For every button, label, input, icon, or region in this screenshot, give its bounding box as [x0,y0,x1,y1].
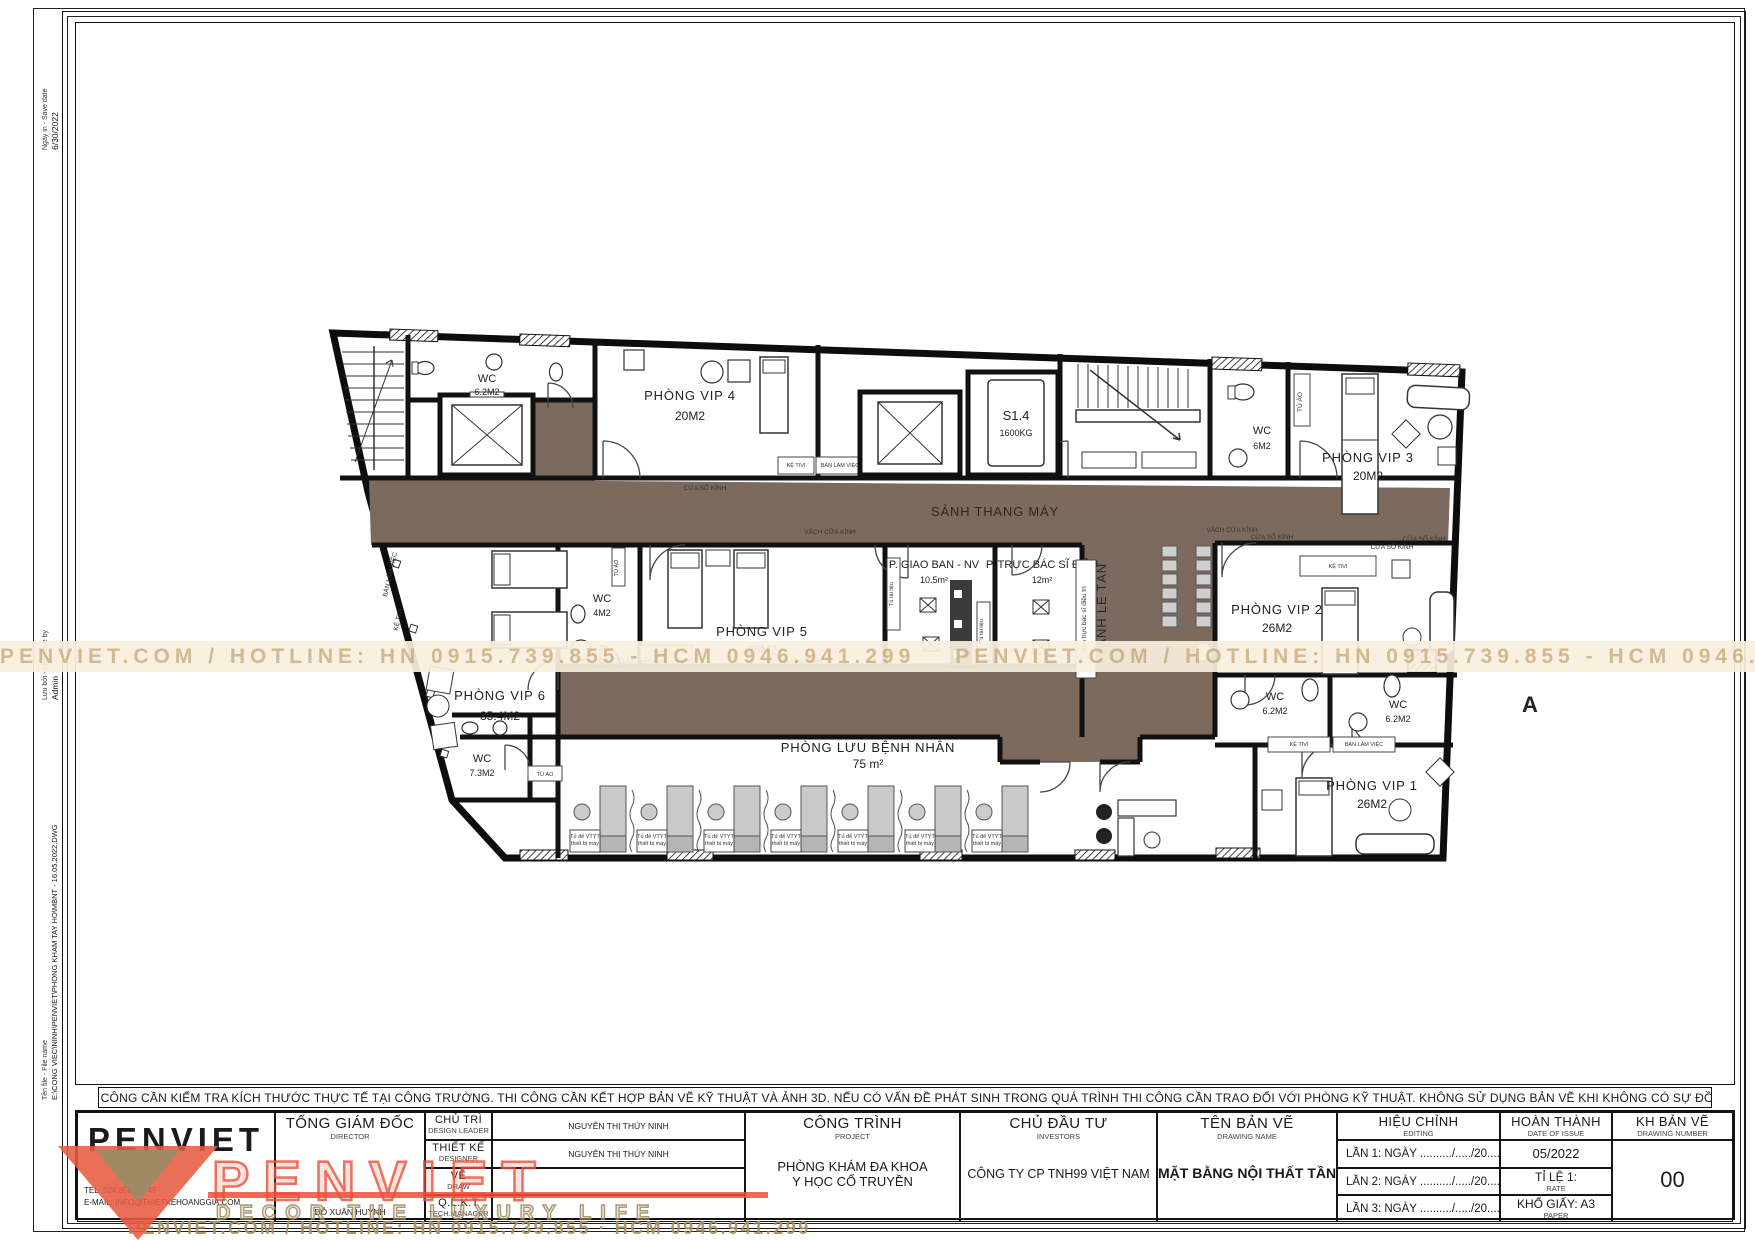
patients-area: 75 m² [853,757,884,771]
wc-top-label: WC [478,373,496,385]
director-name: ĐỖ XUÂN HUỲNH [276,1207,424,1217]
vip1-label: PHÒNG VIP 1 [1326,778,1418,793]
section-marker-a: A [1522,692,1538,717]
wca-label: WC [1266,691,1284,703]
role-name-4 [492,1195,745,1222]
role-2-en: DESIGNER [426,1154,491,1163]
drawing-name-title: TÊN BẢN VẼ [1158,1115,1336,1132]
wcrow-tv-label: KỆ TIVI [1290,740,1309,748]
scale-cell: TỈ LỆ 1: RATE [1500,1168,1612,1195]
lobby-elevator-label: SẢNH THANG MÁY [931,504,1059,519]
completion-header-cell: HOÀN THÀNH DATE OF ISSUE [1500,1112,1612,1140]
wall-hatch [520,334,570,347]
vip4-window-label: CỬA SỔ KÍNH [684,483,727,492]
elevator-1 [440,392,533,475]
vip4-tv-shelf-label: KỆ TIVI [787,461,806,469]
completion-date-cell: 05/2022 [1500,1140,1612,1168]
elevator-2 [860,392,960,475]
editing-header-cell: HIỆU CHỈNH EDITING [1337,1112,1500,1140]
wall-hatch [1212,357,1262,371]
vip4-label: PHÒNG VIP 4 [644,388,736,403]
wc-top-area: 6.2M2 [474,387,499,397]
wc73-area: 7.3M2 [469,768,494,778]
role-name-2: NGUYỄN THỊ THÚY NINH [492,1140,745,1168]
wall-hatch [520,850,568,860]
drawing-name-title-en: DRAWING NAME [1158,1132,1336,1141]
investor-title: CHỦ ĐẦU TƯ [961,1115,1156,1132]
vip3-label: PHÒNG VIP 3 [1322,450,1414,465]
completion-title-en: DATE OF ISSUE [1501,1129,1611,1138]
role-label-1: CHỦ TRÌ DESIGN LEADER [425,1112,492,1140]
vip2-window-label-1: CỬA SỔ KÍNH [1251,532,1294,541]
s14-label: S1.4 [1003,408,1030,423]
bed-cabinet-label: Tủ để VTYT [905,833,935,840]
wcrow-desk-label: BÀN LÀM VIỆC [1345,740,1384,748]
role-name-1: NGUYỄN THỊ THÚY NINH [492,1112,745,1140]
drawing-name-value: MẶT BẰNG NỘI THẤT TẦNG 4 [1158,1165,1336,1181]
vip2-window-label-2: CỬA SỔ KÍNH [1403,534,1446,543]
investor-cell: CHỦ ĐẦU TƯ INVESTORS CÔNG TY CP TNH99 VI… [960,1112,1157,1222]
bed-cabinet-label2: thiết bị máy [705,841,733,847]
investor-title-en: INVESTORS [961,1132,1156,1141]
truc-area: 12m² [1032,575,1053,585]
vip2-area: 26M2 [1262,621,1292,635]
editing-title: HIỆU CHỈNH [1338,1115,1499,1129]
wcmid-area: 4M2 [593,608,611,618]
wall-hatch [390,329,438,342]
bed-cabinet-label2: thiết bị máy [906,841,934,847]
number-title-en: DRAWING NUMBER [1613,1129,1732,1138]
vip2-tv-label: KỆ TIVI [1329,562,1348,570]
vip4-desk-label: BÀN LÀM VIỆC [821,461,860,469]
vip5-area: 28M2 [747,643,777,657]
wcb-label: WC [1389,699,1407,711]
director-title: TỔNG GIÁM ĐỐC [276,1115,424,1132]
role-label-3: VẼ DRAW [425,1168,492,1195]
title-block: PENVIET TEL: 024.85875.745 E-MAIL: INFO@… [75,1110,1735,1220]
giaoban-label: P. GIAO BAN - NV [889,559,980,571]
lobby-desk-label: Bàn trực bác sĩ điều trị [1079,586,1088,651]
editing-row-2: LẦN 2: NGÀY ........../...../20..... [1337,1168,1500,1195]
paper-vi: KHỔ GIẤY: A3 [1501,1198,1611,1211]
bed-cabinet-label: Tủ để VTYT [838,833,868,840]
role-name-3 [492,1168,745,1195]
role-1-en: DESIGN LEADER [426,1126,491,1135]
role-2-vi: THIẾT KẾ [426,1142,491,1154]
titleblock-director-cell: TỔNG GIÁM ĐỐC DIRECTOR ĐỖ XUÂN HUỲNH [275,1112,425,1222]
s14-load-label: 1600KG [999,428,1032,438]
vip5-window-label-1: CỬA SỔ KÍNH [599,656,642,665]
vip4-area: 20M2 [675,409,705,423]
project-value-1: PHÒNG KHÁM ĐA KHOA [746,1159,959,1174]
bed-cabinet-label2: thiết bị máy [839,841,867,847]
wc73-label: WC [473,753,491,765]
wall-hatch [1075,850,1115,860]
number-title: KH BẢN VẼ [1613,1115,1732,1129]
vip5-glass-label: VÁCH CỬA KÍNH [804,527,856,536]
giaoban-cabinet2-label: Tủ tài liệu [978,619,985,643]
wcmid-wardrobe-label: TỦ ÁO [613,559,620,577]
vip2-label: PHÒNG VIP 2 [1231,602,1323,617]
role-1-vi: CHỦ TRÌ [426,1114,491,1126]
wardrobe-box-label: TỦ ÁO [537,771,555,778]
role-3-vi: VẼ [426,1170,491,1182]
vip1-area: 26M2 [1357,797,1387,811]
drawing-sheet: Ngày in - Save date 6/30/2022 Lưu bởi - … [0,0,1755,1240]
wcb-area: 6.2M2 [1385,714,1410,724]
wc6-area: 6M2 [1253,441,1271,451]
role-4-vi: Q.L.K.T [426,1197,491,1209]
editing-row-1: LẦN 1: NGÀY ........../...../20..... [1337,1140,1500,1168]
vip3-window-label: CỬA SỔ KÍNH [1371,542,1414,551]
wcmid-label: WC [593,593,611,605]
project-title: CÔNG TRÌNH [746,1115,959,1132]
scale-vi: TỈ LỆ 1: [1501,1171,1611,1184]
paper-cell: KHỔ GIẤY: A3 PAPER [1500,1195,1612,1222]
editing-row-3: LẦN 3: NGÀY ........../...../20..... [1337,1195,1500,1222]
role-3-en: DRAW [426,1182,491,1191]
wca-area: 6.2M2 [1262,706,1287,716]
scale-en: RATE [1501,1184,1611,1193]
vip5-tv-label: KỆ TIVI [657,649,676,657]
note-text: GHI CHÚ: - TRƯỚC KHI THI CÔNG CẦN KIỂM T… [98,1091,1712,1105]
bed-cabinet-label2: thiết bị máy [973,841,1001,847]
investor-value: CÔNG TY CP TNH99 VIỆT NAM [961,1167,1156,1181]
project-title-en: PROJECT [746,1132,959,1141]
giaoban-cabinet-label: Tủ tài liệu [888,582,895,606]
bed-cabinet-label2: thiết bị máy [638,841,666,847]
vip5-window-label-2: CỬA SỔ KÍNH [779,656,822,665]
project-value-2: Y HỌC CỔ TRUYỀN [746,1174,959,1189]
bed-cabinet-label2: thiết bị máy [772,841,800,847]
penviet-logo-mark [58,1146,223,1240]
bed-cabinet-label2: thiết bị máy [571,841,599,847]
service-lift-s14: S1.4 1600KG [968,372,1058,475]
vip5-label: PHÒNG VIP 5 [716,624,808,639]
giaoban-area: 10.5m² [920,575,948,585]
bed-cabinet-label: Tủ để VTYT [637,833,667,840]
director-title-en: DIRECTOR [276,1132,424,1141]
editing-title-en: EDITING [1338,1129,1499,1138]
bed-cabinet-label: Tủ để VTYT [570,833,600,840]
vip3-wardrobe-label: TỦ ÁO [1295,392,1304,412]
wc6-label: WC [1253,425,1271,437]
vip2-glass-label: VÁCH CỬA KÍNH [1206,525,1258,534]
project-cell: CÔNG TRÌNH PROJECT PHÒNG KHÁM ĐA KHOA Y … [745,1112,960,1222]
patients-label: PHÒNG LƯU BỆNH NHÂN [781,740,955,755]
completion-title: HOÀN THÀNH [1501,1115,1611,1129]
role-4-en: TECH.MANAGER [426,1209,491,1218]
number-value-cell: 00 [1612,1140,1733,1222]
vip3-area: 20M2 [1353,469,1383,483]
drawing-name-cell: TÊN BẢN VẼ DRAWING NAME MẶT BẰNG NỘI THẤ… [1157,1112,1337,1222]
bed-cabinet-label: Tủ để VTYT [704,833,734,840]
bed-cabinet-label: Tủ để VTYT [771,833,801,840]
role-label-2: THIẾT KẾ DESIGNER [425,1140,492,1168]
floor-plan: SẢNH THANG MÁY SẢNH LỄ TÂN [0,0,1755,1090]
bed-cabinet-label: Tủ để VTYT [972,833,1002,840]
number-header-cell: KH BẢN VẼ DRAWING NUMBER [1612,1112,1733,1140]
role-label-4: Q.L.K.T TECH.MANAGER [425,1195,492,1222]
vip6-label: PHÒNG VIP 6 [454,688,546,703]
wall-hatch [1408,363,1460,377]
paper-en: PAPER [1501,1211,1611,1220]
note-row: GHI CHÚ: - TRƯỚC KHI THI CÔNG CẦN KIỂM T… [98,1087,1712,1108]
